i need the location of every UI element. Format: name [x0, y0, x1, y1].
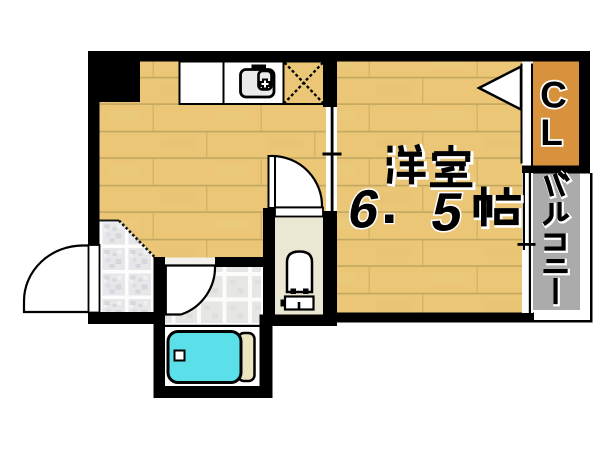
- svg-text:C: C: [540, 75, 567, 116]
- svg-text:L: L: [540, 112, 563, 153]
